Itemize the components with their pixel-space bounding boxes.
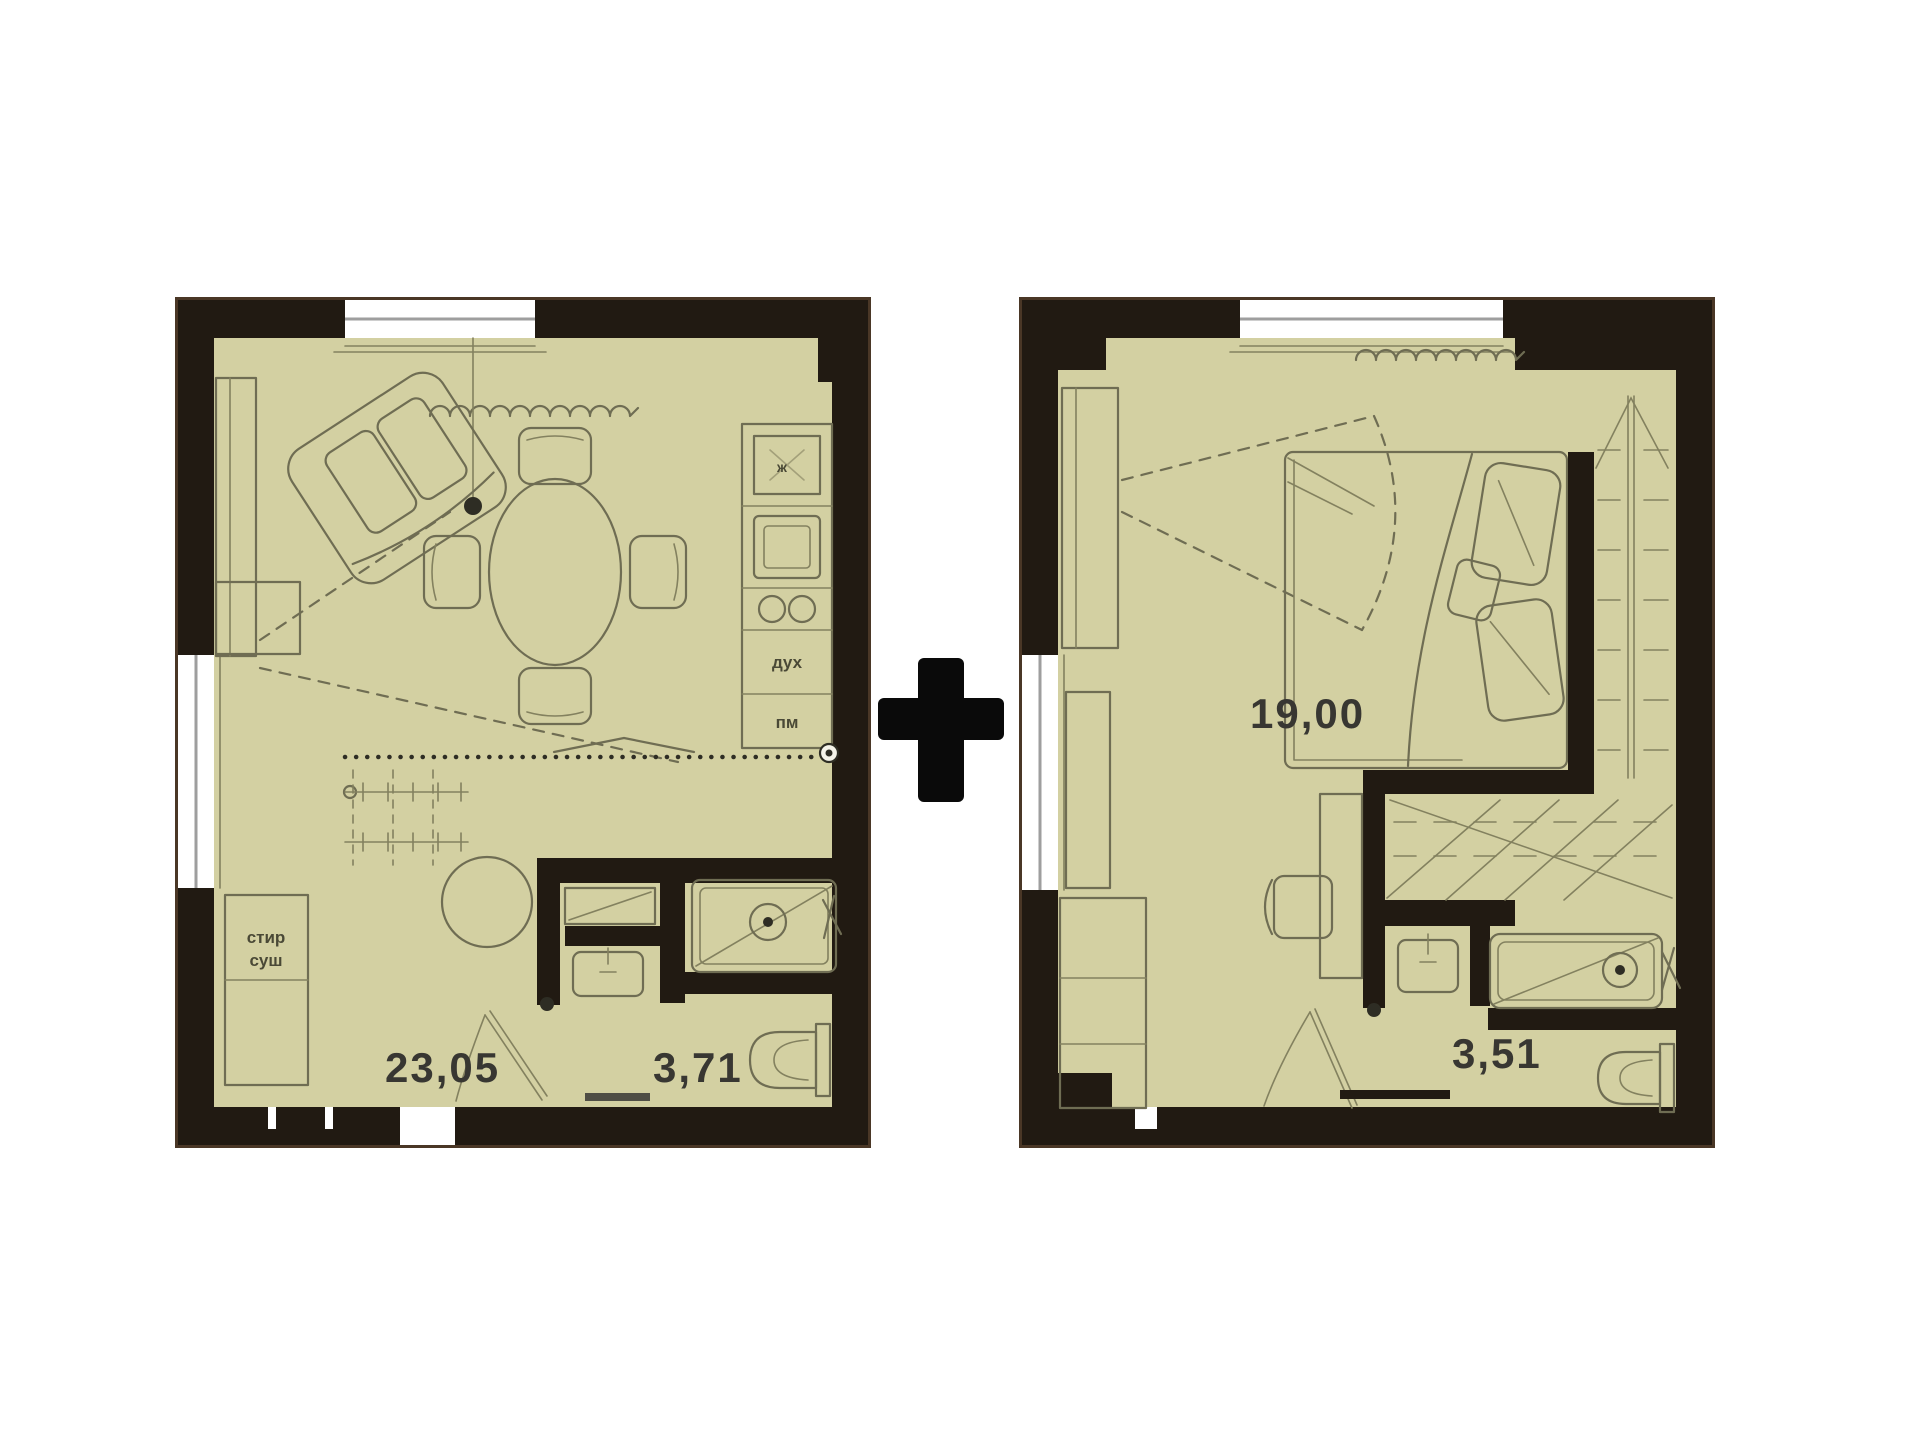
floor-plan-image: ж дух пм [0, 0, 1920, 1440]
interior-wall [1488, 1008, 1676, 1030]
dining-table [424, 428, 686, 724]
threshold-mark [585, 1093, 650, 1101]
desk-chair [1265, 876, 1332, 938]
left-floor-plan: ж дух пм [175, 297, 871, 1148]
bathroom-sink [1398, 934, 1458, 992]
pillow [1469, 461, 1562, 587]
kitchen-sink [754, 516, 820, 578]
bathroom-wall [565, 926, 660, 946]
dining-chair [630, 536, 686, 608]
bathroom-sink [573, 948, 643, 996]
pendant-lamp [464, 338, 482, 515]
right-plan-drawing: 19,00 3,51 [1022, 300, 1712, 1145]
closet-hatch [344, 770, 468, 865]
folding-door [554, 738, 694, 752]
plus-icon [878, 658, 1004, 802]
threshold-mark [1340, 1090, 1450, 1099]
area-label-bedroom: 19,00 [1250, 690, 1365, 737]
cushion [1446, 558, 1502, 623]
dining-chair [519, 428, 591, 484]
right-floor-plan: 19,00 3,51 [1019, 297, 1715, 1148]
pivot-marker [820, 744, 838, 762]
fridge: ж [754, 436, 820, 494]
dishwasher-label: пм [776, 713, 799, 732]
dresser [1060, 898, 1146, 1108]
shower [1490, 934, 1680, 1008]
toilet [750, 1024, 830, 1096]
washer-dryer-unit: стир суш [225, 895, 308, 1085]
interior-wall [1363, 770, 1385, 1008]
kitchen-unit: ж дух пм [742, 424, 832, 748]
dining-chair [519, 668, 591, 724]
area-label-bathroom: 3,51 [1452, 1030, 1542, 1077]
shower [692, 880, 841, 972]
tv-viewing-cone [260, 512, 678, 762]
interior-wall [1385, 900, 1515, 926]
interior-wall [1385, 770, 1594, 794]
sliding-niche [565, 888, 655, 924]
fridge-label: ж [776, 459, 788, 475]
washer-label: стир [247, 928, 286, 947]
area-label-living: 23,05 [385, 1044, 500, 1091]
tv-stand [1062, 388, 1118, 888]
shower-faucet [1662, 948, 1680, 990]
oven-label: дух [772, 653, 803, 672]
tv-cabinet [216, 378, 300, 656]
bathroom-wall [685, 972, 843, 994]
bathroom [537, 858, 843, 1005]
shower-faucet [823, 896, 841, 938]
pouf-table [442, 857, 532, 947]
wardrobe-hatch [1596, 396, 1668, 778]
headboard-wall [1568, 452, 1594, 794]
blanket-fold [1408, 454, 1472, 766]
desk [1320, 794, 1362, 978]
tv-viewing-cone [1122, 416, 1395, 630]
pillow [1474, 597, 1565, 722]
interior-wall [1470, 926, 1490, 1006]
toilet [1598, 1044, 1674, 1112]
cooktop [759, 596, 815, 622]
area-label-bathroom: 3,71 [653, 1044, 743, 1091]
bathroom-wall [660, 883, 685, 1003]
left-plan-drawing: ж дух пм [178, 300, 868, 1145]
shelf-hatch [1387, 800, 1672, 900]
dryer-label: суш [249, 951, 282, 970]
